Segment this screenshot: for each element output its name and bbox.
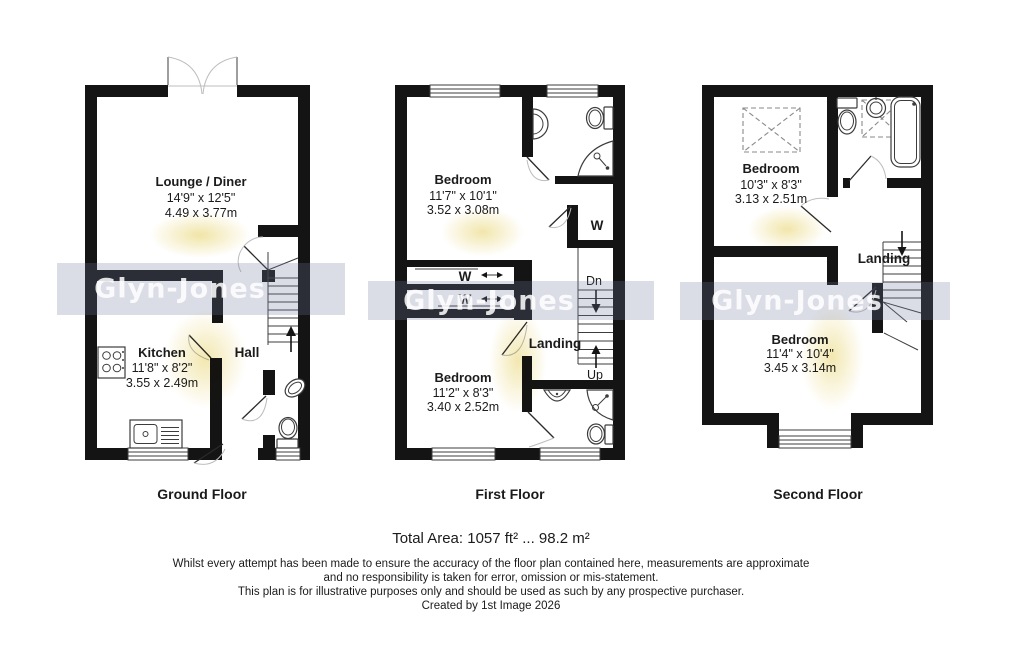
shower-room-toilet-symbol [587,107,614,129]
stairs-up-label: Up [587,368,603,382]
hall-room-name: Hall [235,345,260,360]
ground-stairs [268,252,298,352]
ground-walls [85,85,310,460]
shower-room-basin-symbol [533,109,548,139]
landing-room-name: Landing [529,336,582,351]
french-doors-icon [168,57,237,94]
wc-window [276,448,300,460]
lounge-dims-imperial: 14'9" x 12'5" [167,191,236,205]
kitchen-window [128,448,188,460]
shower-room-window [547,85,598,97]
bathroom-shower-symbol [587,390,613,420]
bedroom-front-dims-metric: 3.13 x 2.51m [735,192,807,206]
bedroom-back-door-swing [849,287,876,312]
bedroom-front-room-name: Bedroom [742,161,799,176]
kitchen-dims-metric: 3.55 x 2.49m [126,376,198,390]
bedroom-skylight-icon [743,108,800,152]
total-area-text: Total Area: 1057 ft² ... 98.2 m² [0,530,982,547]
sink-symbol [130,420,182,448]
bedroom-front-window-left [430,85,500,97]
sliding-arrow-icon [481,296,503,302]
bathroom-basin-symbol [544,390,570,401]
lounge-door-swing [238,237,269,272]
hob-symbol [98,347,125,378]
bathroom-toilet-symbol [837,98,857,134]
disclaimer-line-1: Whilst every attempt has been made to en… [0,557,982,571]
second-floor-plan: Bedroom 10'3" x 8'3" 3.13 x 2.51m Bedroo… [702,85,933,448]
bedroom-back-dims-imperial: 11'4" x 10'4" [766,347,834,361]
bedroom-back-window [432,448,495,460]
first-floor-plan: Bedroom 11'7" x 10'1" 3.52 x 3.08m Bedro… [395,85,625,460]
bedroom-front-dims-metric: 3.52 x 3.08m [427,203,499,217]
bedroom-front-dims-imperial: 10'3" x 8'3" [740,178,802,192]
created-by-text: Created by 1st Image 2026 [0,599,982,613]
bathroom-door-swing [528,412,554,447]
bedroom-back-dims-metric: 3.40 x 2.52m [427,400,499,414]
wardrobe-label: W [459,269,472,284]
disclaimer-line-2: and no responsibility is taken for error… [0,571,982,585]
stairs-up-arrow-icon [286,326,296,352]
stairs-down-label: Dn [586,274,602,288]
bathtub-symbol [891,97,920,167]
shower-cubicle-symbol [578,141,613,176]
shower-room-door-swing [527,157,549,181]
lounge-room-name: Lounge / Diner [156,174,247,189]
bedroom-back-dims-imperial: 11'2" x 8'3" [433,386,494,400]
bedroom-front-dims-imperial: 11'7" x 10'1" [429,189,497,203]
wc-toilet-symbol [277,418,298,449]
bedroom-back-dims-metric: 3.45 x 3.14m [764,361,836,375]
floorplan-page: Lounge / Diner 14'9" x 12'5" 4.49 x 3.77… [0,0,1020,657]
bathroom-door-swing [849,156,886,181]
bedroom-back-door-swing [502,322,527,355]
bathroom-toilet-symbol [588,424,614,444]
kitchen-dims-imperial: 11'8" x 8'2" [132,361,193,375]
bedroom-back-room-name: Bedroom [771,332,828,347]
second-floor-title: Second Floor [773,486,862,502]
first-stairs [578,248,613,368]
wardrobe-label: W [459,292,472,307]
ground-floor-title: Ground Floor [157,486,246,502]
disclaimer-line-3: This plan is for illustrative purposes o… [0,585,982,599]
bedroom-front-room-name: Bedroom [434,172,491,187]
footer: Total Area: 1057 ft² ... 98.2 m² Whilst … [0,530,982,613]
bathroom-window [540,448,600,460]
bedroom-back-room-name: Bedroom [434,370,491,385]
sliding-arrow-icon [481,272,503,278]
ground-floor-plan: Lounge / Diner 14'9" x 12'5" 4.49 x 3.77… [85,57,310,464]
second-stairs [883,231,921,350]
dormer-window [779,430,851,448]
wardrobe-label: W [591,218,604,233]
kitchen-door-swing [189,335,211,360]
stairs-down-arrow-icon [592,290,601,313]
landing-room-name: Landing [858,251,911,266]
stairs-up-arrow-icon [592,345,601,368]
kitchen-room-name: Kitchen [138,345,186,360]
first-floor-title: First Floor [475,486,544,502]
wc-door-swing [242,396,267,421]
lounge-dims-metric: 4.49 x 3.77m [165,206,237,220]
